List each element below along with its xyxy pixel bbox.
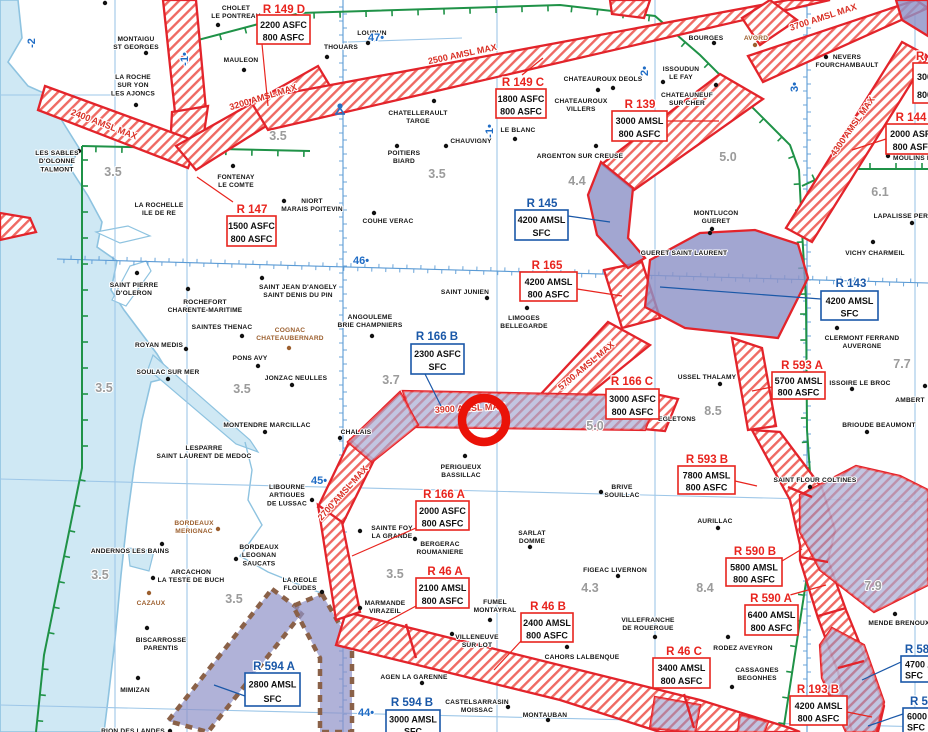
city-label: NIORT <box>301 198 323 205</box>
zone-callout-value-R593B: 7800 AMSL <box>683 470 731 480</box>
city-label: COUHE VERAC <box>363 218 414 225</box>
city-label: FONTENAY <box>217 174 255 181</box>
city-label: MARAIS POITEVIN <box>281 206 343 213</box>
zone-callout-title-R593A: R 593 A <box>781 360 823 372</box>
city-dot <box>420 681 424 685</box>
city-label: D'OLONNE <box>39 158 76 165</box>
boundary-tick <box>43 669 49 670</box>
zone-callout-value-R147: 1500 ASFC <box>228 221 275 231</box>
graticule-coordinate-label: -2 <box>26 38 38 48</box>
city-label: MAULEON <box>224 57 259 64</box>
city-dot <box>528 545 532 549</box>
zone-callout-value-R145: SFC <box>533 228 552 238</box>
city-dot <box>661 80 665 84</box>
grid-mora-value: 3.7 <box>382 373 399 387</box>
zone-callout-title-R5: R 5 <box>910 696 928 708</box>
city-label: ISSOUDUN <box>663 66 699 73</box>
city-label: ST GEORGES <box>113 44 159 51</box>
city-dot <box>708 231 712 235</box>
city-dot <box>808 485 812 489</box>
zone-callout-value-R144: 2000 ASFC <box>890 129 928 139</box>
city-dot <box>290 383 294 387</box>
city-dot <box>444 144 448 148</box>
city-dot <box>145 626 149 630</box>
zone-callout-value-R165: 4200 AMSL <box>525 277 573 287</box>
zone-callout-value-R149D: 2200 ASFC <box>260 20 307 30</box>
city-label: CHOLET <box>222 5 250 12</box>
boundary-tick <box>40 695 46 696</box>
city-dot <box>596 88 600 92</box>
city-label: VILLENEUVE <box>455 634 499 641</box>
city-dot <box>358 529 362 533</box>
zone-callout-value-R165: 800 ASFC <box>528 289 570 299</box>
city-label: DE ROUERGUE <box>622 625 674 632</box>
city-dot <box>653 635 657 639</box>
zone-callout-value-R594B: 3000 AMSL <box>389 714 437 724</box>
grid-mora-value: 3.5 <box>225 592 242 606</box>
city-label: BRIVE <box>611 484 633 491</box>
zone-callout-value-R590A: 6400 AMSL <box>748 610 796 620</box>
city-label: SOUILLAC <box>604 492 639 499</box>
city-label: SAINTES THENAC <box>192 324 253 331</box>
city-dot <box>450 632 454 636</box>
graticule-coordinate-label: 45• <box>311 475 327 487</box>
zone-callout-value-R166B: 2300 ASFC <box>414 349 461 359</box>
city-dot <box>463 454 467 458</box>
zone-callout-value-R590B: 800 ASFC <box>733 574 775 584</box>
city-label: LA ROCHELLE <box>135 202 184 209</box>
grid-mora-value: 3.5 <box>104 165 121 179</box>
city-label: LIBOURNE <box>269 484 305 491</box>
city-dot <box>136 676 140 680</box>
boundary-tick <box>37 721 43 722</box>
city-dot <box>599 490 603 494</box>
city-label: ANDERNOS LES BAINS <box>91 548 170 555</box>
city-dot <box>358 606 362 610</box>
city-label: AURILLAC <box>697 518 732 525</box>
city-label: LE FAY <box>669 74 693 81</box>
city-dot <box>282 199 286 203</box>
zone-callout-title-R46C: R 46 C <box>666 646 702 658</box>
city-label: LA GRANDE <box>372 533 413 540</box>
city-dot <box>850 387 854 391</box>
city-label: SARLAT <box>518 530 545 537</box>
city-dot <box>513 137 517 141</box>
city-label: MOULINS MO <box>893 155 928 162</box>
zone-callout-value-R149C: 1800 ASFC <box>498 94 545 104</box>
city-label: LA ROCHE <box>115 74 151 81</box>
zone-callout-title-R149C: R 149 C <box>502 77 544 89</box>
city-label: ISSOIRE LE BROC <box>829 380 890 387</box>
city-label: VIRAZEIL <box>369 608 401 615</box>
zone-callout-title-R-edge: R 1 <box>916 51 928 63</box>
city-label: SAUCATS <box>243 560 276 567</box>
zone-callout-title-R139: R 139 <box>625 99 656 111</box>
airport-dot <box>287 346 291 350</box>
zone-callout-title-R147: R 147 <box>237 204 268 216</box>
aeronautical-chart: 2400 AMSL MAX3200 AMSL MAX2500 AMSL MAX3… <box>0 0 928 732</box>
zone-callout-value-R166C: 3000 ASFC <box>609 394 656 404</box>
zone-callout-value-R46B: 2400 AMSL <box>523 618 571 628</box>
zone-callout-title-R46A: R 46 A <box>427 566 462 578</box>
city-label: ARTIGUES <box>269 492 305 499</box>
city-label: SAINT LAURENT DE MEDOC <box>157 453 252 460</box>
city-label: SAINT PIERRE <box>110 282 159 289</box>
zone-callout-value-R594B: SFC <box>404 726 423 732</box>
zone-callout-value-R147: 800 ASFC <box>231 234 273 244</box>
chart-viewport: 2400 AMSL MAX3200 AMSL MAX2500 AMSL MAX3… <box>0 0 928 732</box>
zone-callout-title-R594A: R 594 A <box>253 661 295 673</box>
city-label: LE PONTREAU <box>211 13 260 20</box>
zone-callout-value-R594A: SFC <box>264 694 283 704</box>
boundary-tick <box>649 15 650 21</box>
city-label: LIMOGES <box>508 315 540 322</box>
city-label: DOMME <box>519 538 546 545</box>
zone-callout-value-R143: 4200 AMSL <box>826 296 874 306</box>
zone-callout-title-R594B: R 594 B <box>391 697 433 709</box>
zone-callout-value-R594A: 2800 AMSL <box>249 679 297 689</box>
airport-dot <box>753 43 757 47</box>
city-dot <box>432 99 436 103</box>
city-dot <box>730 685 734 689</box>
airport-label: CHATEAUBERNARD <box>256 335 324 342</box>
grid-mora-value: 4.4 <box>568 174 585 188</box>
city-dot <box>616 574 620 578</box>
city-dot <box>135 271 139 275</box>
graticule-coordinate-label: 2• <box>639 66 651 76</box>
airport-dot <box>216 527 220 531</box>
zone-callout-value-R143: SFC <box>841 308 860 318</box>
airport-label: MERIGNAC <box>175 528 213 535</box>
zone-callout-value-R58: SFC <box>905 671 924 681</box>
zone-callout-value-R590A: 800 ASFC <box>751 623 793 633</box>
zone-callout-value-R46B: 800 ASFC <box>526 630 568 640</box>
zone-callout-title-R166B: R 166 B <box>416 331 458 343</box>
city-dot <box>611 86 615 90</box>
city-label: BERGERAC <box>420 541 459 548</box>
city-label: MONTLUCON <box>694 210 739 217</box>
graticule-coordinate-label: 3• <box>789 82 801 92</box>
zone-callout-value-R590B: 5800 AMSL <box>730 562 778 572</box>
boundary-tick <box>571 6 572 12</box>
city-label: SAINT FLOUR COLTINES <box>774 477 857 484</box>
city-dot <box>260 276 264 280</box>
grid-mora-value: 8.5 <box>704 404 721 418</box>
city-dot <box>240 334 244 338</box>
zone-callout-value-R593B: 800 ASFC <box>686 482 728 492</box>
city-label: D'OLERON <box>116 290 152 297</box>
city-label: SUR YON <box>117 82 148 89</box>
city-label: LES AJONCS <box>111 90 155 97</box>
city-label: LA TESTE DE BUCH <box>158 577 225 584</box>
city-label: SAINT DENIS DU PIN <box>263 292 333 299</box>
zone-callout-title-R590A: R 590 A <box>750 593 792 605</box>
boundary-tick <box>782 697 788 698</box>
zone-callout-value-R145: 4200 AMSL <box>518 215 566 225</box>
city-label: RODEZ AVEYRON <box>713 645 772 652</box>
city-label: MIMIZAN <box>120 687 150 694</box>
zone-callout-value-R593A: 800 ASFC <box>778 387 820 397</box>
city-dot <box>714 83 718 87</box>
city-label: CASTELSARRASIN <box>445 699 509 706</box>
zone-callout-title-R166A: R 166 A <box>423 489 465 501</box>
city-label: VILLEFRANCHE <box>621 617 675 624</box>
city-dot <box>488 618 492 622</box>
zone-callout-value-R166A: 800 ASFC <box>422 518 464 528</box>
city-label: LE BLANC <box>501 127 536 134</box>
restricted-area-corridor <box>610 0 650 18</box>
zone-callout-title-R165: R 165 <box>532 260 563 272</box>
zone-callout-title-R46B: R 46 B <box>530 601 566 613</box>
city-label: PERIGUEUX <box>441 464 482 471</box>
city-dot <box>565 645 569 649</box>
zone-callout-value-R46C: 3400 AMSL <box>658 663 706 673</box>
city-label: SUR CHER <box>669 100 705 107</box>
city-label: ILE DE RE <box>142 210 176 217</box>
city-label: CHAUVIGNY <box>450 138 492 145</box>
city-label: DE LUSSAC <box>267 500 307 507</box>
zone-callout-value-R139: 800 ASFC <box>619 129 661 139</box>
city-dot <box>923 384 927 388</box>
city-label: ROUMANIERE <box>416 549 463 556</box>
boundary-tick <box>597 9 598 15</box>
zone-callout-value-R46A: 2100 AMSL <box>419 583 467 593</box>
zone-callout-value-R593A: 5700 AMSL <box>775 376 823 386</box>
grid-mora-value: 3.5 <box>91 568 108 582</box>
city-label: AGEN LA GARENNE <box>380 674 448 681</box>
city-dot <box>216 23 220 27</box>
grid-mora-value: 3.5 <box>269 129 286 143</box>
city-dot <box>372 211 376 215</box>
city-dot <box>234 557 238 561</box>
city-label: ARCACHON <box>171 569 211 576</box>
city-dot <box>231 164 235 168</box>
city-label: CLERMONT FERRAND <box>825 335 900 342</box>
zone-callout-title-R144: R 144 <box>896 112 927 124</box>
city-label: VILLERS <box>566 106 596 113</box>
boundary-tick <box>786 671 792 672</box>
zone-callout-title-R193B: R 193 B <box>797 684 839 696</box>
zone-callout-value-R-edge: 3000 ASFC <box>917 72 928 82</box>
city-label: LEOGNAN <box>242 552 276 559</box>
city-label: MARMANDE <box>365 600 406 607</box>
zone-callout-value-R193B: 4200 AMSL <box>795 701 843 711</box>
city-label: TARGE <box>406 118 430 125</box>
city-label: BEGONHES <box>737 675 777 682</box>
city-dot <box>320 590 324 594</box>
city-label: GUERET <box>702 218 731 225</box>
city-label: JONZAC NEULLES <box>265 375 328 382</box>
city-label: PONS AVY <box>233 355 268 362</box>
city-label: BRIOUDE BEAUMONT <box>842 422 916 429</box>
city-label: LES SABLES <box>35 150 79 157</box>
zone-callout-value-R46A: 800 ASFC <box>422 596 464 606</box>
zone-callout-value-R166C: 800 ASFC <box>612 407 654 417</box>
zone-callout-value-R193B: 800 ASFC <box>798 713 840 723</box>
city-dot <box>151 576 155 580</box>
city-label: ROYAN MEDIS <box>135 342 184 349</box>
city-label: BIARD <box>393 158 415 165</box>
zone-callout-value-R139: 3000 AMSL <box>616 116 664 126</box>
graticule-coordinate-label: 47• <box>368 32 384 44</box>
city-label: LAPALISSE PERIGN <box>874 213 928 220</box>
airport-label: BORDEAUX <box>174 520 214 527</box>
city-dot <box>395 144 399 148</box>
zone-callout-value-R46C: 800 ASFC <box>661 676 703 686</box>
grid-mora-value: 5.0 <box>719 150 736 164</box>
city-dot <box>710 227 714 231</box>
city-label: VICHY CHARMEIL <box>845 250 904 257</box>
zone-callout-title-R590B: R 590 B <box>734 546 776 558</box>
city-label: LA REOLE <box>283 577 318 584</box>
city-label: TALMONT <box>40 166 73 173</box>
city-dot <box>413 537 417 541</box>
city-label: BISCARROSSE <box>136 637 187 644</box>
city-label: BOURGES <box>689 35 724 42</box>
city-label: USSEL THALAMY <box>678 374 737 381</box>
zone-callout-value-R149C: 800 ASFC <box>500 106 542 116</box>
city-label: MONTAIGU <box>117 36 154 43</box>
city-dot <box>263 430 267 434</box>
city-dot <box>726 635 730 639</box>
city-label: FUMEL <box>483 599 507 606</box>
zone-callout-title-R145: R 145 <box>527 198 558 210</box>
city-label: LESPARRE <box>185 445 222 452</box>
grid-mora-value: 3.5 <box>386 567 403 581</box>
city-label: NEVERS <box>833 54 862 61</box>
grid-mora-value: 3.5 <box>233 382 250 396</box>
city-label: SAINT JUNIEN <box>441 289 489 296</box>
city-dot <box>716 526 720 530</box>
city-label: POITIERS <box>388 150 421 157</box>
city-label: CHATEAUNEUF <box>661 92 713 99</box>
city-label: CHALAIS <box>341 429 372 436</box>
zone-callout-value-R144: 800 ASFC <box>893 142 928 152</box>
city-dot <box>865 430 869 434</box>
boundary-tick <box>798 594 804 595</box>
city-label: SAINTE FOY <box>371 525 413 532</box>
graticule-coordinate-label: -1• <box>484 124 496 138</box>
graticule-coordinate-label: 46• <box>353 255 369 267</box>
city-label: CHATELLERAULT <box>388 110 447 117</box>
city-label: AUVERGNE <box>843 343 882 350</box>
city-label: RION DES LANDES <box>101 728 165 732</box>
zone-callout-title-R143: R 143 <box>836 278 867 290</box>
city-label: SAINT JEAN D'ANGELY <box>259 284 337 291</box>
grid-mora-value: 5.0 <box>586 419 603 433</box>
city-label: CHATEAUROUX DEOLS <box>564 76 643 83</box>
city-label: CHATEAUROUX <box>555 98 608 105</box>
zone-callout-value-R149D: 800 ASFC <box>263 32 305 42</box>
city-label: BELLEGARDE <box>500 323 548 330</box>
city-dot <box>338 436 342 440</box>
city-label: FLOUDES <box>284 585 317 592</box>
city-label: MONTAYRAL <box>474 607 517 614</box>
grid-mora-value: 7.9 <box>864 579 881 593</box>
zone-callout-value-R58: 4700 AMSL <box>905 660 928 670</box>
city-dot <box>310 498 314 502</box>
airport-label: AVORD <box>744 35 768 42</box>
city-label: SUR LOT <box>462 642 492 649</box>
zone-callout-title-R58: R 58 <box>905 644 928 656</box>
city-dot <box>594 144 598 148</box>
city-label: GUERET SAINT LAURENT <box>641 250 727 257</box>
airport-label: COGNAC <box>275 327 306 334</box>
city-dot <box>718 382 722 386</box>
graticule-coordinate-label: -1• <box>179 52 191 66</box>
airport-dot <box>147 591 151 595</box>
city-label: FOURCHAMBAULT <box>816 62 879 69</box>
city-dot <box>835 326 839 330</box>
city-dot <box>871 240 875 244</box>
zone-callout-title-R166C: R 166 C <box>611 376 653 388</box>
city-dot <box>893 612 897 616</box>
airport-label: CAZAUX <box>137 600 166 607</box>
city-label: THOUARS <box>324 44 358 51</box>
city-dot <box>824 55 828 59</box>
graticule-coordinate-label: 44• <box>358 707 374 719</box>
city-label: CASSAGNES <box>735 667 779 674</box>
city-label: AMBERT <box>895 397 924 404</box>
city-label: FIGEAC LIVERNON <box>583 567 647 574</box>
city-label: MENDE BRENOUX <box>868 620 928 627</box>
city-dot <box>144 51 148 55</box>
city-dot <box>166 377 170 381</box>
city-dot <box>325 55 329 59</box>
grid-mora-value: 8.4 <box>696 581 713 595</box>
city-label: CHARENTE-MARITIME <box>168 307 243 314</box>
zone-callout-value-R5: 6000 AMSL <box>907 712 928 722</box>
city-dot <box>242 68 246 72</box>
city-dot <box>103 1 107 5</box>
grid-mora-value: 3.5 <box>95 381 112 395</box>
zone-callout-value-R166A: 2000 ASFC <box>419 506 466 516</box>
city-dot <box>525 306 529 310</box>
zone-callout-title-R593B: R 593 B <box>686 454 728 466</box>
city-label: PARENTIS <box>144 645 179 652</box>
city-label: BRIE CHAMPNIERS <box>338 322 403 329</box>
city-label: ANGOULEME <box>348 314 393 321</box>
grid-mora-value: 6.1 <box>871 185 888 199</box>
city-label: MOISSAC <box>461 707 493 714</box>
city-label: BORDEAUX <box>239 544 279 551</box>
zone-callout-value-R-edge: 800 ASFC <box>917 90 928 100</box>
city-dot <box>910 221 914 225</box>
grid-mora-value: 3.5 <box>428 167 445 181</box>
city-label: ARGENTON SUR CREUSE <box>537 153 624 160</box>
zone-callout-value-R166B: SFC <box>429 362 448 372</box>
city-label: SOULAC SUR MER <box>137 369 200 376</box>
city-label: EGLETONS <box>658 416 696 423</box>
city-dot <box>370 334 374 338</box>
boundary-tick <box>790 646 796 647</box>
zone-callout-value-R5: SFC <box>907 723 926 732</box>
city-dot <box>256 364 260 368</box>
city-label: ROCHEFORT <box>183 299 227 306</box>
city-dot <box>485 296 489 300</box>
city-dot <box>186 287 190 291</box>
city-label: MONTENDRE MARCILLAC <box>223 422 310 429</box>
city-label: MONTAUBAN <box>523 712 568 719</box>
grid-mora-value: 7.7 <box>893 357 910 371</box>
city-label: CAHORS LALBENQUE <box>545 654 620 661</box>
grid-mora-value: 4.3 <box>581 581 598 595</box>
city-dot <box>184 347 188 351</box>
city-label: LE COMTE <box>218 182 254 189</box>
city-dot <box>160 542 164 546</box>
city-dot <box>134 103 138 107</box>
city-label: BASSILLAC <box>441 472 481 479</box>
